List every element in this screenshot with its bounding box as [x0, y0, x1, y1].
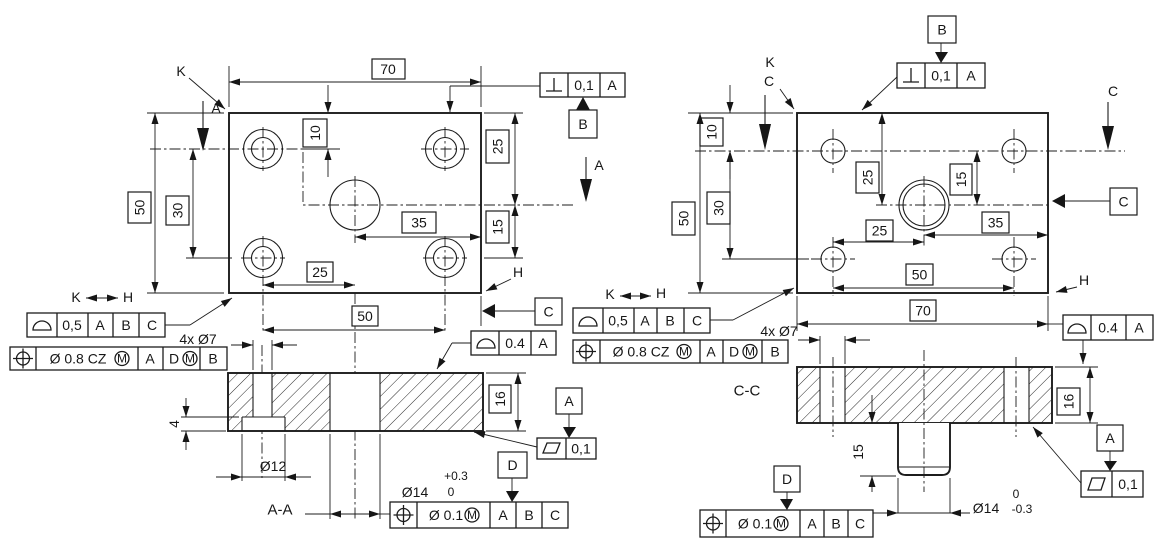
svg-text:0,5: 0,5 [62, 317, 82, 333]
svg-text:C: C [1118, 194, 1128, 210]
svg-text:10: 10 [307, 125, 323, 141]
section-arrow-c-left [759, 95, 771, 150]
svg-text:25: 25 [872, 223, 888, 239]
svg-text:C: C [543, 304, 553, 320]
svg-text:30: 30 [170, 203, 186, 219]
fcf-perpendicularity-right: 0,1 A [862, 63, 985, 110]
svg-text:C: C [1108, 83, 1118, 99]
svg-text:D: D [782, 471, 792, 487]
dim-30-left: 30 [166, 149, 232, 258]
svg-text:70: 70 [380, 61, 396, 77]
svg-text:Ø 0.8 CZ: Ø 0.8 CZ [613, 344, 670, 360]
svg-text:B: B [665, 313, 674, 329]
svg-text:A: A [564, 393, 574, 409]
datum-b-right: B [928, 16, 956, 63]
left-section-cut-line [150, 149, 575, 205]
dim-10-left: 10 [303, 85, 328, 177]
svg-text:D: D [729, 344, 739, 360]
svg-text:0,1: 0,1 [1118, 476, 1138, 492]
svg-text:A: A [640, 313, 650, 329]
datum-triangle-icon [1104, 461, 1117, 471]
fcf-flatness-right: A 0,1 [1033, 425, 1143, 497]
section-arrow-a-left: A [197, 100, 221, 151]
svg-text:0.4: 0.4 [1098, 320, 1118, 336]
dim-50-bottom-right: 50 [833, 264, 1014, 288]
svg-text:M: M [679, 345, 689, 359]
datum-triangle-icon [482, 304, 495, 318]
section-arrow-icon [759, 124, 771, 150]
right-hole-bottom-left [811, 237, 855, 296]
svg-text:D: D [507, 457, 517, 473]
svg-text:0: 0 [1013, 487, 1020, 501]
section-arrow-a-right: A [580, 157, 604, 202]
svg-text:H: H [1079, 272, 1089, 288]
left-fcf-group: K H 0,5 A B C 4x Ø7 Ø 0.8 CZ M A D M B [10, 289, 232, 370]
dim-70-left: 70 [229, 59, 481, 107]
between-k-h-right: K H [605, 285, 666, 302]
svg-text:+0.3: +0.3 [444, 469, 468, 483]
dim-25-horiz-right: 25 [833, 220, 924, 242]
datum-d-right: D [774, 466, 800, 510]
svg-text:15: 15 [953, 172, 969, 188]
drawing-canvas: 70 0,1 A B 10 30 50 [0, 0, 1163, 545]
left-center-hole [330, 176, 380, 243]
dim-25-right-left-view: 25 [484, 113, 523, 205]
svg-text:A: A [706, 344, 716, 360]
dim-4xd7-left [231, 340, 297, 370]
svg-text:50: 50 [912, 267, 928, 283]
corner-label-h-right: H [1056, 272, 1089, 292]
fcf-position-center-right: Ø 0.1 M A B C [700, 510, 873, 537]
svg-text:0.4: 0.4 [505, 335, 525, 351]
svg-text:H: H [656, 285, 666, 301]
svg-text:H: H [513, 264, 523, 280]
fcf-position-holes-left: Ø 0.8 CZ M A D M B [10, 347, 227, 370]
svg-text:C: C [855, 516, 865, 532]
svg-text:Ø14: Ø14 [973, 500, 1000, 516]
svg-text:0,1: 0,1 [574, 77, 594, 93]
svg-text:0,1: 0,1 [931, 68, 951, 84]
datum-triangle-icon [1052, 194, 1065, 208]
dim-10-right: 10 [700, 85, 730, 179]
svg-text:A: A [498, 507, 508, 523]
datum-b-left: B [569, 97, 597, 138]
svg-text:C: C [692, 313, 702, 329]
svg-text:K: K [176, 63, 186, 79]
between-k-h-left: K H [71, 289, 133, 305]
svg-text:B: B [770, 344, 779, 360]
svg-text:A: A [211, 100, 221, 116]
svg-text:10: 10 [704, 124, 720, 140]
dim-4xd7-right [798, 336, 870, 364]
svg-text:A: A [1105, 430, 1115, 446]
left-section-view: 16 0.4 A A 0,1 D Ø12 [166, 331, 596, 528]
svg-text:A: A [807, 516, 817, 532]
svg-text:50: 50 [676, 211, 692, 227]
fcf-profile-top-left: 0.4 A [437, 331, 556, 369]
dim-50-bottom-left: 50 [263, 306, 445, 330]
svg-text:50: 50 [132, 200, 148, 216]
section-arrow-icon [580, 179, 592, 202]
svg-text:25: 25 [490, 139, 506, 155]
svg-text:A: A [1134, 320, 1144, 336]
svg-text:0,1: 0,1 [571, 441, 591, 457]
datum-triangle-icon [563, 427, 576, 438]
dim-30-right-view: 30 [707, 151, 809, 259]
hole-count-note-left: 4x Ø7 [179, 331, 217, 347]
dim-25-bottom-left: 25 [263, 262, 355, 285]
svg-text:M: M [185, 352, 195, 366]
svg-text:K: K [765, 54, 775, 70]
svg-text:M: M [467, 508, 477, 522]
svg-text:C: C [764, 73, 774, 89]
dim-16-left: 16 [486, 373, 526, 431]
svg-text:16: 16 [492, 391, 508, 407]
svg-text:16: 16 [1061, 394, 1077, 410]
section-arrow-icon [197, 128, 209, 151]
datum-triangle-icon [780, 499, 793, 510]
left-hole-top-right [421, 127, 469, 171]
svg-text:Ø 0.8 CZ: Ø 0.8 CZ [50, 351, 107, 367]
svg-text:Ø 0.1: Ø 0.1 [738, 516, 772, 532]
svg-text:A: A [607, 77, 617, 93]
dim-d12-left: Ø12 [216, 434, 311, 481]
right-top-view: K C C B 0,1 A 10 50 [672, 16, 1137, 331]
svg-text:B: B [578, 116, 587, 132]
svg-text:B: B [121, 317, 130, 333]
svg-text:M: M [745, 345, 755, 359]
svg-text:Ø14: Ø14 [402, 484, 429, 500]
section-arrow-c-right: C [1102, 83, 1118, 150]
svg-text:4: 4 [166, 420, 182, 428]
svg-text:Ø12: Ø12 [260, 458, 287, 474]
datum-triangle-icon [935, 52, 948, 63]
corner-label-h-left: H [486, 264, 523, 291]
fcf-position-center-left: Ø 0.1 M A B C [390, 502, 568, 528]
svg-text:C: C [550, 507, 560, 523]
svg-text:H: H [123, 289, 133, 305]
svg-text:A: A [594, 157, 604, 173]
datum-c-right-view: C [1052, 188, 1137, 215]
svg-text:50: 50 [357, 308, 373, 324]
svg-text:Ø 0.1: Ø 0.1 [429, 507, 463, 523]
svg-text:25: 25 [860, 170, 876, 186]
svg-text:K: K [605, 286, 615, 302]
hole-count-note-right: 4x Ø7 [760, 323, 798, 339]
dim-70-right: 70 [797, 296, 1063, 331]
svg-text:D: D [169, 351, 179, 367]
svg-text:C: C [147, 317, 157, 333]
corner-label-kc-right: K C [764, 54, 794, 109]
svg-text:A: A [95, 317, 105, 333]
svg-text:A: A [538, 335, 548, 351]
svg-text:M: M [776, 517, 786, 531]
svg-text:15: 15 [850, 444, 866, 460]
dim-35-left: 35 [355, 212, 481, 237]
svg-text:0: 0 [448, 485, 455, 499]
section-arrow-icon [1102, 126, 1114, 150]
right-hole-bottom-right [992, 237, 1036, 296]
right-fcf-group: K H 0,5 A B C 4x Ø7 Ø 0.8 CZ M A D M B [573, 285, 798, 363]
svg-text:M: M [117, 352, 127, 366]
svg-text:-0.3: -0.3 [1012, 502, 1033, 516]
svg-text:B: B [524, 507, 533, 523]
svg-text:A: A [145, 351, 155, 367]
dim-50-right-view: 50 [672, 113, 793, 293]
svg-text:15: 15 [490, 219, 506, 235]
svg-text:70: 70 [915, 303, 931, 319]
datum-d-left: D [498, 452, 527, 502]
svg-text:A: A [966, 68, 976, 84]
fcf-perpendicularity-left: 0,1 A [450, 73, 625, 112]
section-name-left: A-A [267, 502, 292, 519]
dim-d14-right: Ø14 0 -0.3 [873, 478, 1033, 516]
dim-15-vert-right: 15 [950, 151, 977, 205]
section-name-right: C-C [734, 383, 761, 400]
gdt-drawing-svg: 70 0,1 A B 10 30 50 [0, 0, 1163, 545]
svg-text:K: K [71, 289, 81, 305]
svg-text:35: 35 [988, 215, 1004, 231]
svg-text:B: B [937, 22, 946, 38]
datum-triangle-icon [506, 491, 519, 502]
datum-triangle-icon [576, 97, 590, 110]
svg-text:35: 35 [411, 215, 427, 231]
svg-text:25: 25 [312, 264, 328, 280]
svg-text:30: 30 [711, 200, 727, 216]
svg-text:B: B [831, 516, 840, 532]
fcf-profile-top-right: 0.4 A [1063, 315, 1153, 364]
datum-c-left-view: C [481, 296, 562, 326]
svg-text:B: B [208, 351, 217, 367]
svg-text:0,5: 0,5 [608, 313, 628, 329]
dim-25-vert-right: 25 [856, 113, 882, 205]
dim-16-right: 16 [1055, 367, 1098, 423]
fcf-position-holes-right: Ø 0.8 CZ M A D M B [573, 340, 788, 363]
dim-15-right-left-view: 15 [484, 205, 523, 258]
